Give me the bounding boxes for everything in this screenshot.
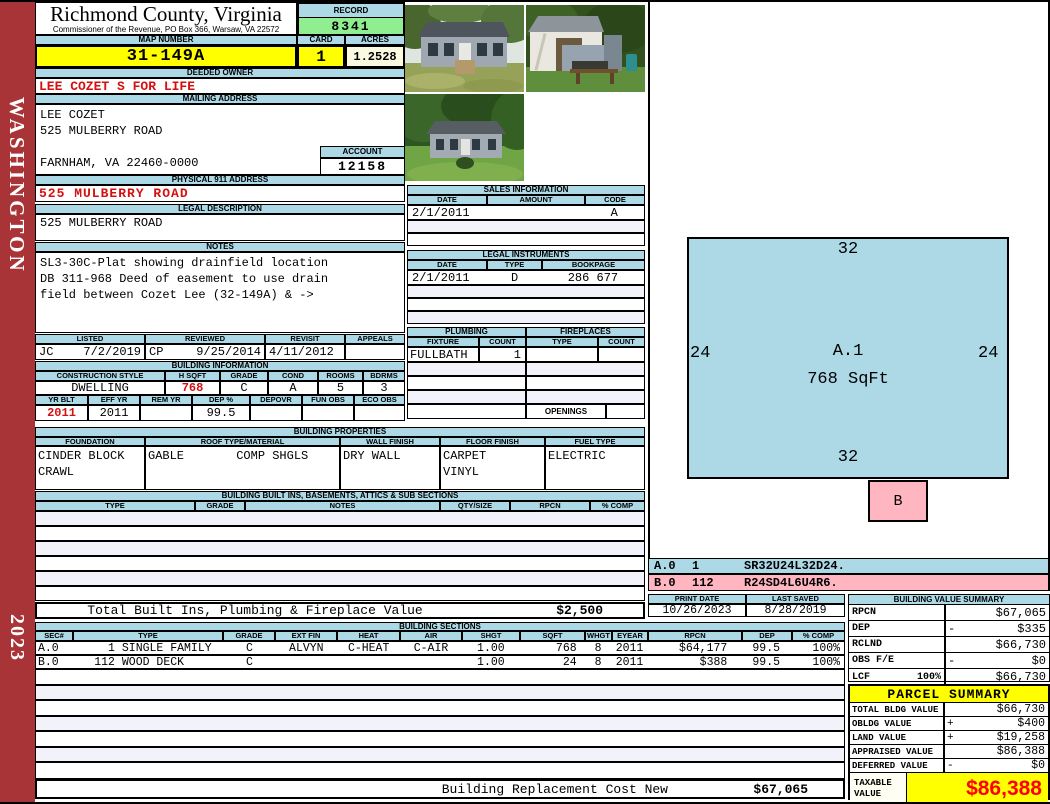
openings-row: OPENINGS [407, 404, 645, 419]
fixture-header: FIXTURE [407, 337, 479, 347]
reviewed-header: REVIEWED [145, 334, 265, 344]
sketch-dim-top: 32 [822, 240, 874, 259]
shgt-value: 1.00 [462, 656, 520, 669]
bdrms-value: 3 [363, 381, 405, 395]
funobs-value [302, 405, 354, 421]
sales-row: 2/1/2011 A [407, 205, 645, 220]
legal-type-header: TYPE [487, 260, 542, 270]
sales-date-header: DATE [407, 195, 487, 205]
bvs-row-value: $335 [960, 622, 1049, 636]
legal-instruments-label: LEGAL INSTRUMENTS [407, 250, 645, 260]
print-date-value: 10/26/2023 [648, 604, 746, 617]
parcel-row-sign: - [945, 760, 959, 772]
bsec-row-a: A.0 1 SINGLE FAMILY C ALVYN C-HEAT C-AIR… [35, 641, 845, 655]
last-saved-label: LAST SAVED [746, 594, 845, 604]
floor-finish-line: VINYL [443, 464, 542, 480]
legal-header-row: DATE TYPE BOOKPAGE [407, 260, 645, 270]
legal-description-value: 525 MULBERRY ROAD [35, 214, 405, 241]
property-record-card: WASHINGTON 2023 Richmond County, Virgini… [0, 0, 1050, 804]
bvs-row-sign: - [946, 654, 960, 668]
reviewed-by: CP [149, 345, 163, 359]
bvs-row-label: RCLND [852, 639, 882, 650]
bvs-row-label: LCF [852, 672, 870, 683]
bvs-row-value: $0 [960, 654, 1049, 668]
bsec-empty-row [35, 716, 845, 731]
bsec-empty-row [35, 762, 845, 779]
dep-value: 99.5 [741, 642, 791, 655]
sales-code: A [585, 206, 644, 219]
county-subtitle: Commissioner of the Revenue, PO Box 366,… [36, 25, 296, 34]
hsqft-header: H SQFT [165, 371, 220, 381]
bsec-header-row: SEC# TYPE GRADE EXT FIN HEAT AIR SHGT SQ… [35, 631, 845, 641]
sales-row-empty [407, 220, 645, 233]
appeals-header: APPEALS [345, 334, 405, 344]
bsec-empty-row [35, 747, 845, 762]
building-value-summary-label: BUILDING VALUE SUMMARY [849, 595, 1049, 605]
dep-pct-value: 99.5 [192, 405, 250, 421]
total-built-ins-row: Total Built Ins, Plumbing & Fireplace Va… [35, 602, 645, 619]
appeals-value [345, 344, 405, 360]
sec-value: A.0 [36, 642, 75, 655]
mailing-address-label: MAILING ADDRESS [35, 94, 405, 104]
revisit-header: REVISIT [265, 334, 345, 344]
bprops-header-row: FOUNDATION ROOF TYPE/MATERIAL WALL FINIS… [35, 437, 645, 446]
legal-description-label: LEGAL DESCRIPTION [35, 204, 405, 214]
ecoobs-value [354, 405, 405, 421]
bi-type-header: TYPE [35, 501, 195, 511]
bi-notes-header: NOTES [245, 501, 440, 511]
legal-row: 2/1/2011 D 286 677 [407, 270, 645, 285]
taxable-label-line: TAXABLE [854, 778, 906, 789]
record-box: RECORD 8341 [297, 2, 405, 35]
replacement-cost-row: Building Replacement Cost New $67,065 [35, 779, 845, 799]
eyear-header: EYEAR [612, 631, 648, 641]
bvs-row-label: DEP [852, 623, 870, 634]
sales-header-row: DATE AMOUNT CODE [407, 195, 645, 205]
parcel-row-label: TOTAL BLDG VALUE [850, 703, 945, 716]
listed-header: LISTED [35, 334, 145, 344]
parcel-row: TOTAL BLDG VALUE $66,730 [850, 703, 1048, 717]
bsec-row-b: B.0 112 WOOD DECK C 1.00 24 8 2011 $388 … [35, 655, 845, 669]
deeded-owner-value: LEE COZET S FOR LIFE [35, 78, 405, 94]
rooms-value: 5 [318, 381, 363, 395]
sales-information-label: SALES INFORMATION [407, 185, 645, 195]
type-num: 1 [75, 642, 115, 655]
deeded-owner-label: DEEDED OWNER [35, 68, 405, 78]
map-number-value: 31-149A [35, 45, 297, 68]
bvs-row-pct: 100% [917, 672, 941, 683]
bvs-row-value: $66,730 [960, 638, 1049, 652]
listed-date: 7/2/2019 [83, 345, 141, 359]
parcel-row-label: LAND VALUE [850, 731, 945, 744]
fixture-count-value: 1 [479, 347, 526, 362]
built-ins-header-row: TYPE GRADE NOTES QTY/SIZE RPCN % COMP [35, 501, 645, 511]
sales-date: 2/1/2011 [408, 206, 487, 219]
plumb-fire-empty-row [407, 376, 645, 390]
bvs-row: RCLND $66,730 [849, 637, 1049, 653]
bvs-row: OBS F/E - $0 [849, 653, 1049, 669]
yrblt-value: 2011 [35, 405, 88, 421]
sketch-code-sec: A.0 [649, 559, 692, 573]
photo-house-front[interactable] [405, 5, 524, 92]
fuel-type-value: ELECTRIC [545, 446, 645, 490]
visit-value-row: JC 7/2/2019 CP 9/25/2014 4/11/2012 [35, 344, 405, 360]
bsec-empty-row [35, 669, 845, 685]
extfin-value: ALVYN [275, 642, 337, 655]
parcel-row-sign: + [945, 718, 959, 730]
foundation-line: CINDER BLOCK [38, 448, 142, 464]
last-saved-value: 8/28/2019 [746, 604, 845, 617]
bi-comp-header: % COMP [590, 501, 645, 511]
bvs-row-value: $66,730 [960, 670, 1049, 684]
bvs-row: DEP - $335 [849, 621, 1049, 637]
fireplace-count-header: COUNT [598, 337, 645, 347]
shgt-value: 1.00 [462, 642, 520, 655]
remyr-value [140, 405, 192, 421]
fireplaces-label: FIREPLACES [526, 327, 645, 337]
print-date-label: PRINT DATE [648, 594, 746, 604]
funobs-header: FUN OBS [302, 395, 354, 405]
building-value-summary: BUILDING VALUE SUMMARY RPCN $67,065 DEP … [848, 594, 1050, 682]
parcel-row-label: DEFERRED VALUE [850, 759, 945, 772]
parcel-row: DEFERRED VALUE - $0 [850, 759, 1048, 773]
taxable-value-row: TAXABLE VALUE $86,388 [850, 773, 1048, 804]
legal-date: 2/1/2011 [408, 271, 487, 284]
sales-amount-header: AMOUNT [487, 195, 585, 205]
plumb-fire-row: FULLBATH 1 [407, 347, 645, 362]
parcel-row: OBLDG VALUE + $400 [850, 717, 1048, 731]
parcel-row: APPRAISED VALUE $86,388 [850, 745, 1048, 759]
parcel-row-value: $400 [959, 717, 1048, 730]
sketch-dim-left: 24 [690, 344, 710, 363]
legal-bookpage-header: BOOKPAGE [542, 260, 645, 270]
comp-value: 100% [791, 656, 844, 669]
wall-finish-header: WALL FINISH [340, 437, 440, 446]
sqft-value: 24 [520, 656, 585, 669]
remyr-header: REM YR [140, 395, 192, 405]
fireplace-type-value [526, 347, 598, 362]
built-ins-label: BUILDING BUILT INS, BASEMENTS, ATTICS & … [35, 491, 645, 501]
photo-house-lawn[interactable] [405, 94, 524, 181]
fixture-count-header: COUNT [479, 337, 526, 347]
bvs-row: LCF 100% $66,730 [849, 669, 1049, 685]
sketch-code-sec: B.0 [649, 576, 692, 590]
legal-row-empty [407, 298, 645, 311]
bvs-row-sign: - [946, 622, 960, 636]
foundation-line: CRAWL [38, 464, 142, 480]
shgt-header: SHGT [462, 631, 520, 641]
extfin-header: EXT FIN [275, 631, 337, 641]
sketch-area-label: A.1 [802, 342, 894, 361]
built-ins-empty-row [35, 511, 645, 526]
sketch-dim-right: 24 [978, 344, 998, 363]
cond-value: A [268, 381, 318, 395]
sketch-code-row-b: B.0 112 R24SD4L6U4R6. [648, 574, 1050, 591]
effyr-header: EFF YR [88, 395, 140, 405]
sales-code-header: CODE [585, 195, 645, 205]
type-name: WOOD DECK [115, 656, 184, 669]
built-ins-empty-row [35, 571, 645, 586]
sales-row-empty [407, 233, 645, 246]
sketch-area: 32 24 24 A.1 768 SqFt 32 B [648, 2, 1050, 558]
legal-bookpage: 286 677 [542, 271, 644, 284]
whgt-value: 8 [585, 656, 612, 669]
total-built-ins-value: $2,500 [473, 603, 643, 618]
physical-address-label: PHYSICAL 911 ADDRESS [35, 175, 405, 185]
sketch-area-sqft: 768 SqFt [782, 370, 914, 389]
construction-style-header: CONSTRUCTION STYLE [35, 371, 165, 381]
card-value: 1 [297, 45, 345, 68]
openings-value [606, 404, 645, 419]
type-num: 112 [75, 656, 115, 669]
whgt-header: WHGT [585, 631, 612, 641]
taxable-label-line: VALUE [854, 789, 906, 800]
bsec-empty-row [35, 685, 845, 700]
bsec-empty-row [35, 731, 845, 747]
visit-header-row: LISTED REVIEWED REVISIT APPEALS [35, 334, 405, 344]
ecoobs-header: ECO OBS [354, 395, 405, 405]
eyear-value: 2011 [612, 656, 648, 669]
parcel-row-value: $66,730 [959, 703, 1048, 716]
binfo-header-row1: CONSTRUCTION STYLE H SQFT GRADE COND ROO… [35, 371, 405, 381]
bdrms-header: BDRMS [363, 371, 405, 381]
notes-line: field between Cozet Lee (32-149A) & -> [40, 287, 400, 303]
map-number-label: MAP NUMBER [35, 35, 297, 45]
acres-value: 1.2528 [345, 45, 405, 68]
grade-value: C [224, 642, 276, 655]
notes-line: SL3-30C-Plat showing drainfield location [40, 255, 400, 271]
sketch-section-b: B [868, 480, 928, 522]
built-ins-empty-row [35, 556, 645, 571]
sketch-code-path: R24SD4L6U4R6. [744, 576, 838, 590]
county-title: Richmond County, Virginia [36, 3, 296, 25]
roof-header: ROOF TYPE/MATERIAL [145, 437, 340, 446]
notes-block: SL3-30C-Plat showing drainfield location… [35, 252, 405, 333]
parcel-row-label: APPRAISED VALUE [850, 745, 945, 758]
sec-header: SEC# [35, 631, 73, 641]
district-label: WASHINGTON [4, 97, 29, 274]
print-value-row: 10/26/2023 8/28/2019 [648, 604, 845, 617]
bvs-row-label: RPCN [852, 607, 876, 618]
tax-year-label: 2023 [5, 614, 28, 662]
sec-value: B.0 [36, 656, 75, 669]
record-value: 8341 [299, 18, 403, 34]
binfo-value-row2: 2011 2011 99.5 [35, 405, 405, 421]
eyear-value: 2011 [612, 642, 648, 655]
sketch-code-qty: 1 [692, 559, 744, 573]
plumbing-label: PLUMBING [407, 327, 526, 337]
floor-finish-header: FLOOR FINISH [440, 437, 545, 446]
fixture-value: FULLBATH [407, 347, 479, 362]
built-ins-empty-row [35, 526, 645, 541]
taxable-value: $86,388 [907, 773, 1048, 804]
construction-style-value: DWELLING [35, 381, 165, 395]
bvs-row-label: OBS F/E [852, 655, 894, 666]
grade-value: C [224, 656, 276, 669]
replacement-cost-value: $67,065 [668, 782, 843, 797]
air-header: AIR [400, 631, 462, 641]
legal-date-header: DATE [407, 260, 487, 270]
yrblt-header: YR BLT [35, 395, 88, 405]
wall-finish-value: DRY WALL [340, 446, 440, 490]
bi-grade-header: GRADE [195, 501, 245, 511]
grade-value: C [220, 381, 268, 395]
binfo-header-row2: YR BLT EFF YR REM YR DEP % DEPOVR FUN OB… [35, 395, 405, 405]
bprops-value-row: CINDER BLOCK CRAWL GABLE COMP SHGLS DRY … [35, 446, 645, 490]
fireplace-type-header: TYPE [526, 337, 598, 347]
parcel-row-value: $86,388 [959, 745, 1048, 758]
fireplace-count-value [598, 347, 645, 362]
record-label: RECORD [299, 4, 403, 18]
legal-type: D [487, 271, 542, 284]
plumb-fire-header-row: FIXTURE COUNT TYPE COUNT [407, 337, 645, 347]
parcel-summary: PARCEL SUMMARY TOTAL BLDG VALUE $66,730 … [848, 684, 1050, 800]
plumb-fire-empty-row [407, 390, 645, 404]
type-header: TYPE [73, 631, 223, 641]
type-name: SINGLE FAMILY [115, 642, 212, 655]
roof-type-value: GABLE [148, 449, 184, 463]
comp-value: 100% [791, 642, 844, 655]
parcel-row-value: $0 [959, 759, 1048, 772]
notes-label: NOTES [35, 242, 405, 252]
depovr-value [250, 405, 302, 421]
legal-row-empty [407, 311, 645, 324]
grade-header: GRADE [220, 371, 268, 381]
parcel-row-value: $19,258 [959, 731, 1048, 744]
fuel-type-header: FUEL TYPE [545, 437, 645, 446]
sketch-code-path: SR32U24L32D24. [744, 559, 845, 573]
rpcn-value: $64,177 [647, 642, 741, 655]
rpcn-value: $388 [647, 656, 741, 669]
cond-header: COND [268, 371, 318, 381]
card-label: CARD [297, 35, 345, 45]
dep-col-header: DEP [742, 631, 792, 641]
binfo-value-row1: DWELLING 768 C A 5 3 [35, 381, 405, 395]
parcel-row-label: OBLDG VALUE [850, 717, 945, 730]
bvs-row: RPCN $67,065 [849, 605, 1049, 621]
openings-label: OPENINGS [526, 404, 606, 419]
depovr-header: DEPOVR [250, 395, 302, 405]
built-ins-empty-row [35, 541, 645, 556]
bvs-row-value: $67,065 [960, 606, 1049, 620]
rpcn-col-header: RPCN [648, 631, 742, 641]
mailing-line: 525 MULBERRY ROAD [40, 123, 400, 139]
bi-rpcn-header: RPCN [510, 501, 590, 511]
plumb-fire-empty-row [407, 362, 645, 376]
heat-value: C-HEAT [337, 642, 400, 655]
county-header: Richmond County, Virginia Commissioner o… [35, 2, 297, 35]
sketch-code-row-a: A.0 1 SR32U24L32D24. [648, 558, 1050, 574]
grade-col-header: GRADE [223, 631, 275, 641]
comp-col-header: % COMP [792, 631, 845, 641]
mailing-line: LEE COZET [40, 107, 400, 123]
account-value: 12158 [320, 158, 405, 175]
sqft-header: SQFT [520, 631, 585, 641]
print-header-row: PRINT DATE LAST SAVED [648, 594, 845, 604]
parcel-row: LAND VALUE + $19,258 [850, 731, 1048, 745]
bsec-empty-row [35, 700, 845, 716]
rooms-header: ROOMS [318, 371, 363, 381]
whgt-value: 8 [585, 642, 612, 655]
dep-pct-header: DEP % [192, 395, 250, 405]
building-properties-label: BUILDING PROPERTIES [35, 427, 645, 437]
heat-header: HEAT [337, 631, 400, 641]
built-ins-empty-row [35, 586, 645, 601]
sidebar-band: WASHINGTON 2023 [0, 2, 35, 802]
building-information-label: BUILDING INFORMATION [35, 361, 405, 371]
total-built-ins-label: Total Built Ins, Plumbing & Fireplace Va… [37, 603, 473, 618]
foundation-header: FOUNDATION [35, 437, 145, 446]
acres-label: ACRES [345, 35, 405, 45]
sqft-value: 768 [520, 642, 585, 655]
reviewed-date: 9/25/2014 [196, 345, 261, 359]
roof-material-value: COMP SHGLS [236, 449, 308, 463]
physical-address-value: 525 MULBERRY ROAD [35, 185, 405, 202]
hsqft-value: 768 [165, 381, 220, 395]
replacement-cost-label: Building Replacement Cost New [442, 782, 668, 797]
photo-shed[interactable] [526, 5, 645, 92]
effyr-value: 2011 [88, 405, 140, 421]
bi-qty-header: QTY/SIZE [440, 501, 510, 511]
sketch-dim-bottom: 32 [822, 448, 874, 467]
notes-line: DB 311-968 Deed of easement to use drain [40, 271, 400, 287]
sketch-code-qty: 112 [692, 576, 744, 590]
dep-value: 99.5 [741, 656, 791, 669]
air-value: C-AIR [400, 642, 462, 655]
parcel-row-sign: + [945, 732, 959, 744]
sales-amount [487, 206, 584, 219]
building-sections-label: BUILDING SECTIONS [35, 622, 845, 631]
legal-row-empty [407, 285, 645, 298]
account-label: ACCOUNT [320, 146, 405, 158]
parcel-summary-label: PARCEL SUMMARY [850, 686, 1048, 703]
floor-finish-line: CARPET [443, 448, 542, 464]
listed-by: JC [39, 345, 53, 359]
revisit-date: 4/11/2012 [265, 344, 345, 360]
